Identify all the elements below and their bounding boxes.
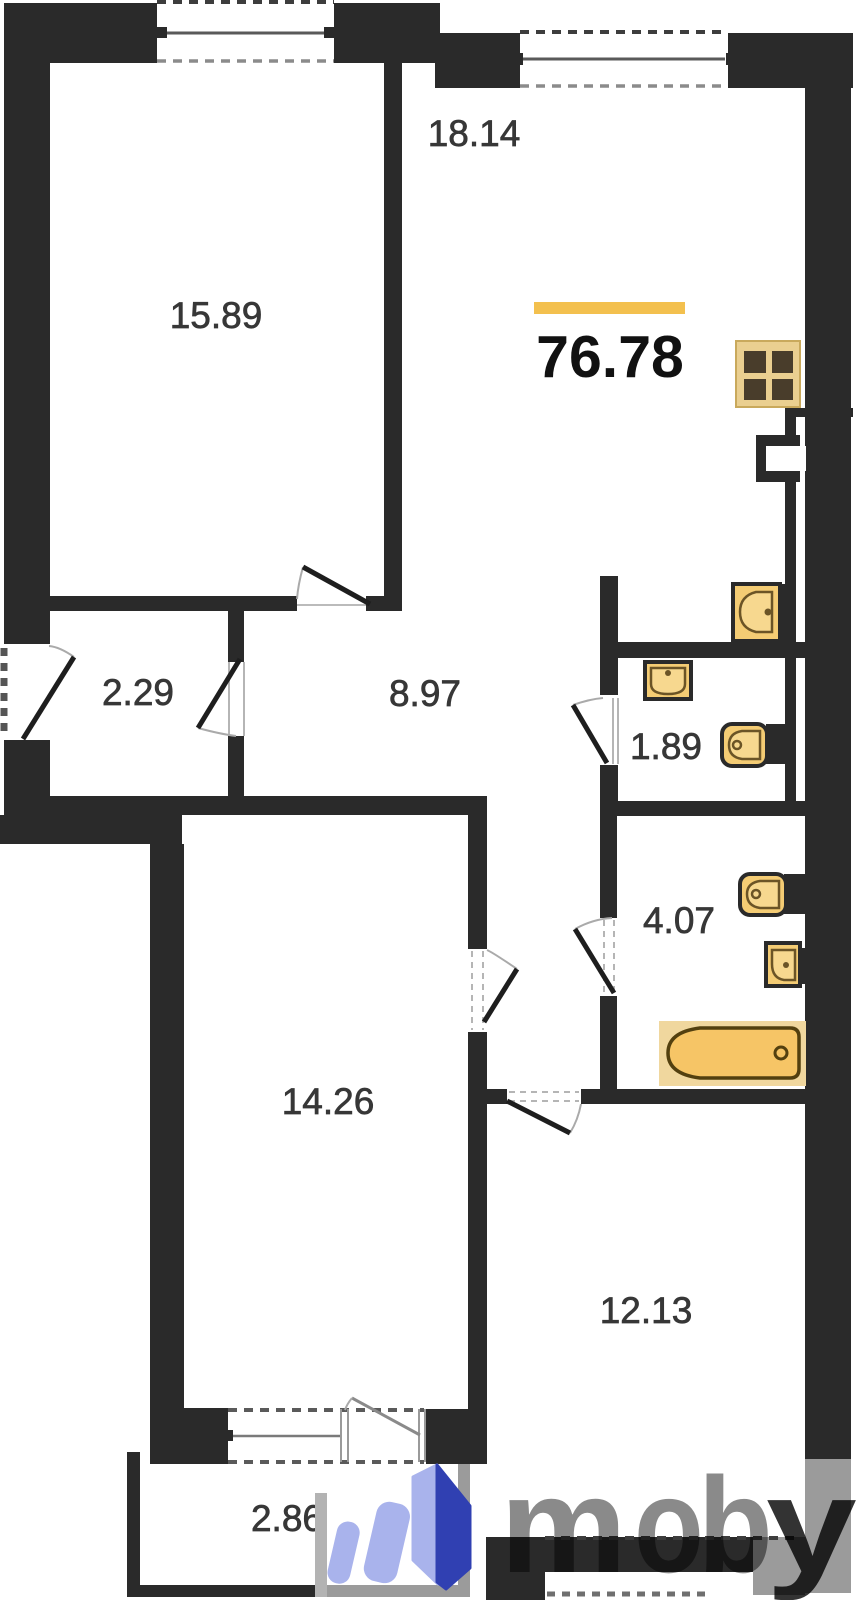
svg-text:14.26: 14.26 [282,1081,375,1122]
svg-text:y: y [766,1449,856,1600]
svg-text:1.89: 1.89 [630,726,702,767]
svg-text:o: o [634,1449,704,1600]
svg-text:b: b [698,1450,773,1600]
svg-text:2.29: 2.29 [102,672,174,713]
svg-text:15.89: 15.89 [170,295,263,336]
svg-text:8.97: 8.97 [389,673,461,714]
svg-text:76.78: 76.78 [536,324,684,390]
svg-text:4.07: 4.07 [643,900,715,941]
svg-text:12.13: 12.13 [600,1290,693,1331]
svg-text:m: m [500,1449,627,1600]
svg-text:2.86: 2.86 [251,1498,323,1539]
svg-text:18.14: 18.14 [428,113,521,154]
